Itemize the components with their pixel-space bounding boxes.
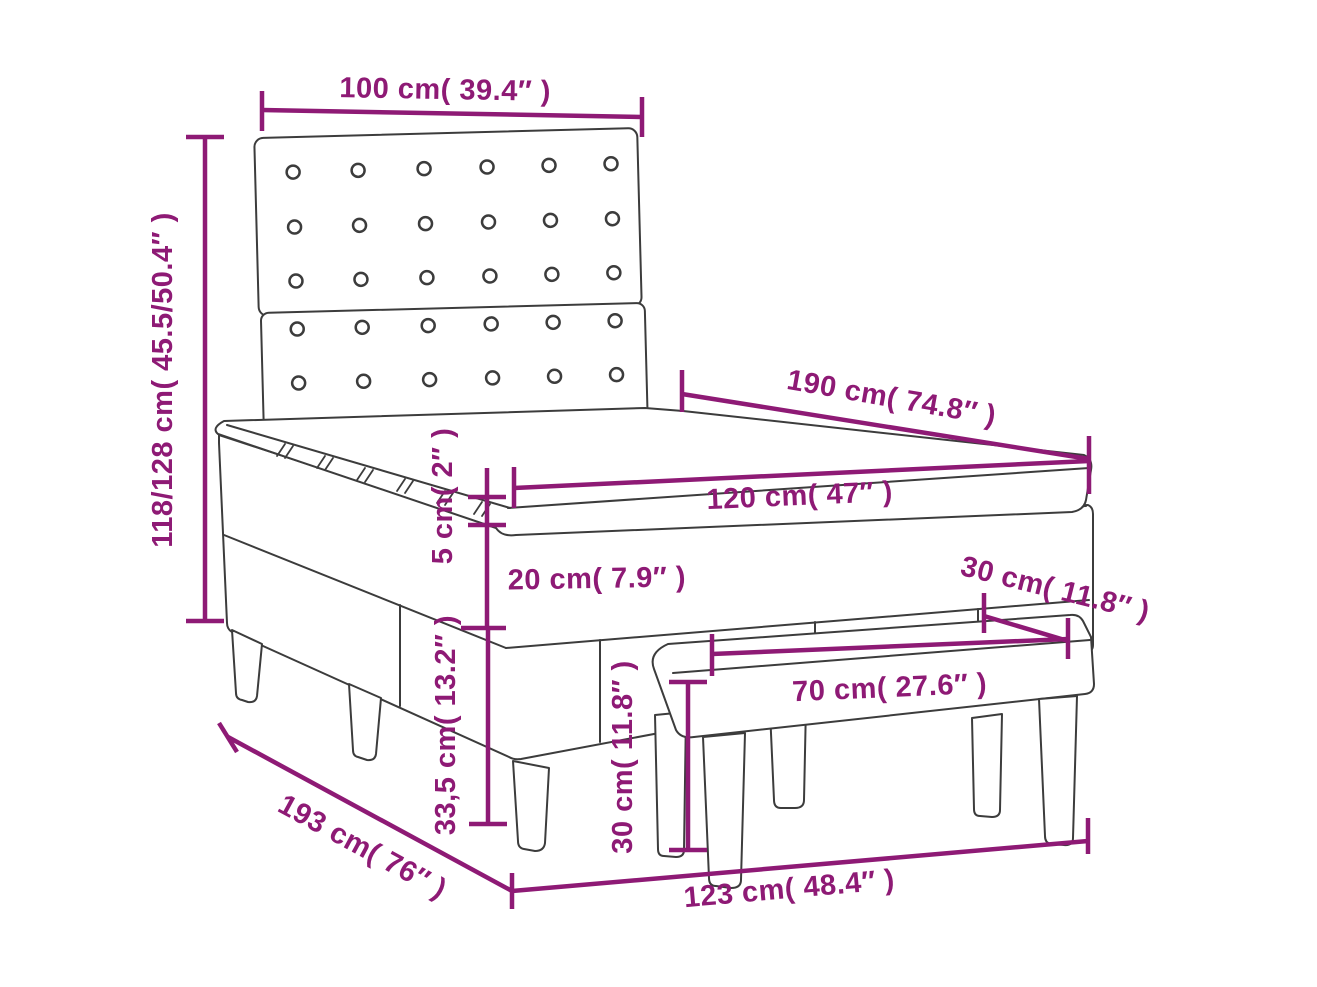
dim-label-headboard-width: 100 cm( 39.4″ )	[339, 72, 551, 108]
dim-base-length: 123 cm( 48.4″ )	[512, 818, 1088, 914]
dim-label-bed-length: 190 cm( 74.8″ )	[785, 364, 999, 432]
bench-front-right-leg	[1039, 696, 1077, 845]
dim-label-overall-height: 118/128 cm( 45.5/50.4″ )	[147, 212, 179, 547]
bench-front-left-leg	[703, 733, 745, 888]
dim-headboard-width: 100 cm( 39.4″ )	[262, 72, 642, 137]
bed-leg-3	[513, 761, 549, 851]
headboard-upper-panel	[254, 128, 642, 316]
dim-label-overall-length: 193 cm( 76″ )	[273, 789, 452, 906]
bed-leg-2	[349, 684, 381, 760]
dim-label-topper-thickness: 5 cm( 2″ )	[427, 428, 459, 565]
dim-label-frame-height: 33,5 cm( 13.2″ )	[430, 615, 462, 835]
headboard	[254, 128, 648, 434]
bench-rear-right-leg	[972, 714, 1002, 817]
dim-label-bench-height: 30 cm( 11.8″ )	[607, 660, 639, 853]
bed-diagram-canvas: 100 cm( 39.4″ ) 118/128 cm( 45.5/50.4″ )…	[0, 0, 1317, 987]
dim-label-mattress-thickness: 20 cm( 7.9″ )	[507, 561, 686, 596]
dim-overall-height: 118/128 cm( 45.5/50.4″ )	[147, 137, 224, 621]
dimension-diagram: 100 cm( 39.4″ ) 118/128 cm( 45.5/50.4″ )…	[0, 0, 1317, 987]
bed-leg-1	[232, 630, 262, 702]
